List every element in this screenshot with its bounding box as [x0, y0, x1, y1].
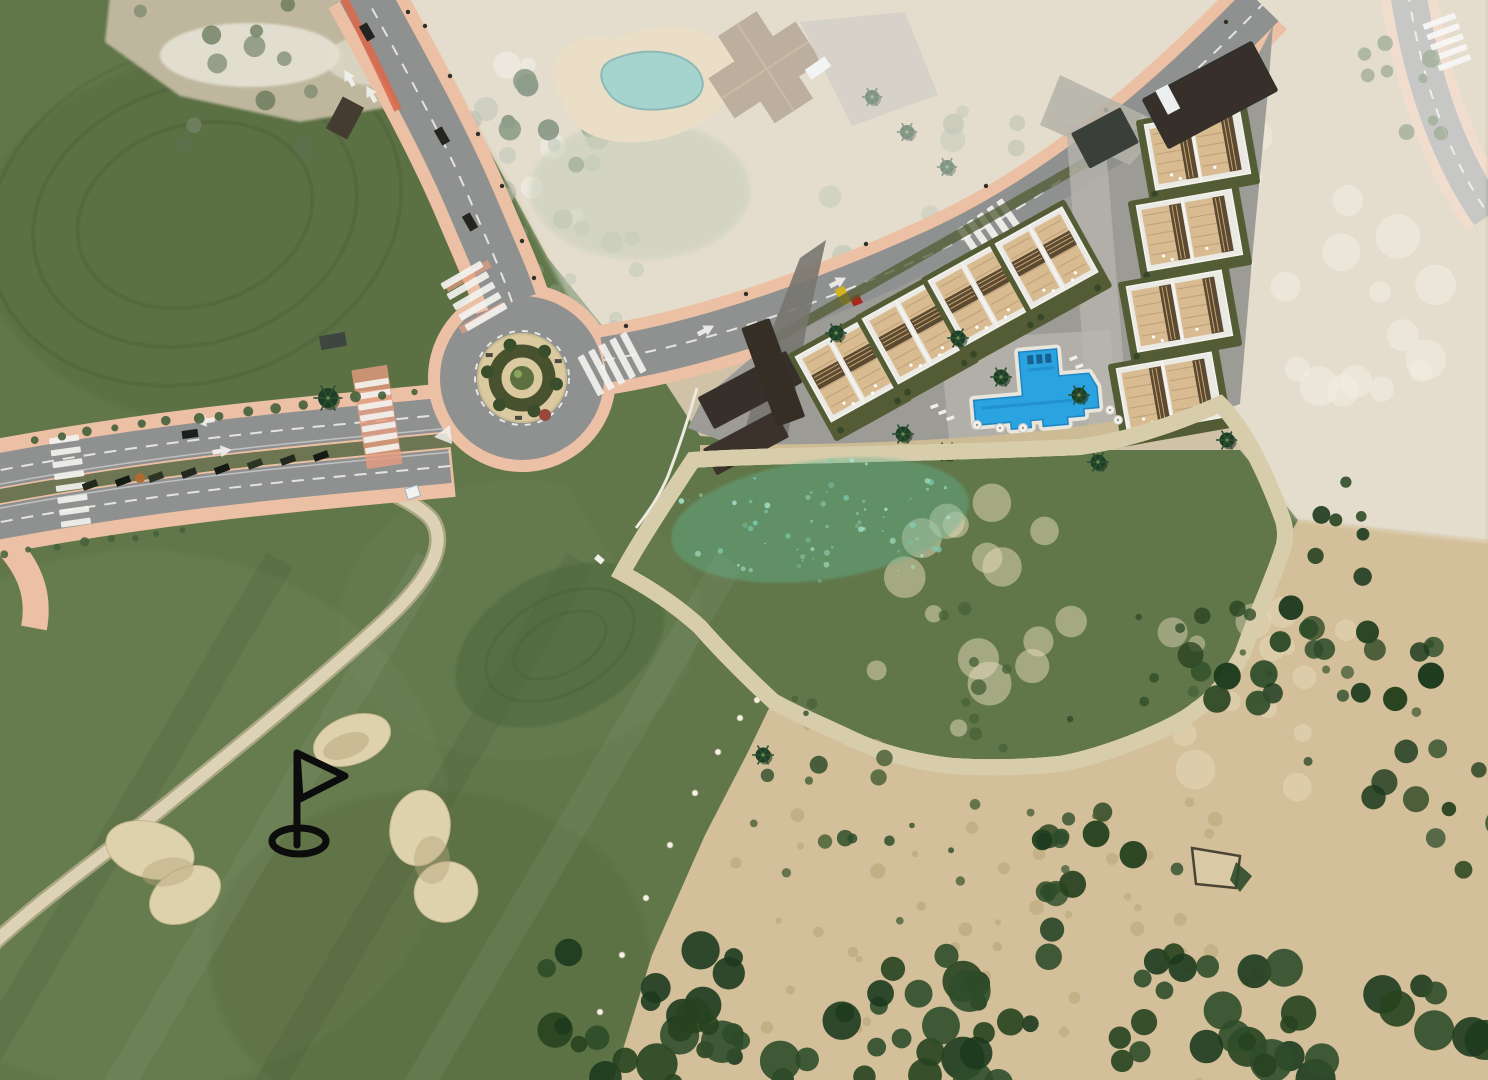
algae-speckle [897, 550, 900, 553]
tree [1204, 829, 1214, 839]
palm-crown [999, 375, 1002, 378]
street-light [532, 276, 536, 280]
shrub [138, 420, 146, 428]
tree [884, 835, 895, 846]
tree [174, 136, 191, 153]
tree [1356, 621, 1379, 644]
tree [1120, 841, 1147, 868]
tree [1051, 830, 1069, 848]
algae-speckle [856, 512, 860, 516]
tree [876, 750, 892, 766]
street-light [1224, 20, 1228, 24]
algae-speckle [855, 524, 859, 528]
algae-speckle [831, 546, 834, 549]
algae-speckle [810, 491, 813, 494]
tree [1129, 1041, 1150, 1062]
palm-crown [956, 336, 959, 339]
tree [847, 833, 857, 843]
tree [1130, 922, 1144, 936]
tree [134, 5, 147, 18]
tree [1185, 797, 1195, 807]
algae-speckle [916, 537, 919, 540]
shrub [270, 403, 281, 414]
street-light [476, 132, 480, 136]
tree [1229, 601, 1245, 617]
algae-speckle [884, 508, 887, 511]
palm-crown [326, 396, 329, 399]
shrub [782, 868, 791, 877]
tree [995, 919, 1001, 925]
shrub [0, 550, 8, 558]
tree [867, 1038, 886, 1057]
tree [958, 638, 999, 679]
shrub [1171, 863, 1184, 876]
shrub [54, 544, 61, 551]
tree [613, 1048, 638, 1073]
tree [870, 769, 886, 785]
street-light [984, 184, 988, 188]
tree [1379, 991, 1415, 1027]
tree [1471, 762, 1486, 777]
site-plan-canvas [0, 0, 1488, 1080]
tree [1059, 1027, 1069, 1037]
umbrella-pole [1109, 409, 1111, 411]
algae-speckle [911, 565, 915, 569]
boundary-stone [667, 842, 673, 848]
algae-speckle [800, 554, 805, 559]
red-shrub [539, 409, 551, 421]
tree [1253, 1054, 1277, 1078]
tree [1059, 871, 1086, 898]
tree [950, 719, 967, 736]
shrub [378, 391, 386, 399]
tree [862, 1017, 871, 1026]
algae-speckle [695, 551, 701, 557]
tree [1361, 785, 1385, 809]
shrub [1244, 608, 1256, 620]
algae-speckle [805, 537, 811, 543]
algae-speckle [850, 458, 855, 463]
tree [699, 1015, 719, 1035]
algae-speckle [742, 523, 747, 528]
tree [934, 944, 958, 968]
shrub [80, 537, 89, 546]
shrub [1135, 614, 1141, 620]
tree [1418, 663, 1444, 689]
shrub [807, 698, 818, 709]
palm-crown [1077, 393, 1080, 396]
shrub [1412, 707, 1422, 717]
algae-speckle [797, 564, 801, 568]
tree [1265, 949, 1303, 987]
tree [244, 35, 266, 57]
tree [1191, 661, 1211, 681]
shrub [243, 406, 253, 416]
shrub [970, 799, 981, 810]
tree [1294, 724, 1312, 742]
tree [856, 956, 863, 963]
algae-speckle [824, 562, 830, 568]
tree [1194, 608, 1211, 625]
tree [555, 939, 583, 967]
algae-speckle [948, 507, 950, 509]
tree [881, 957, 905, 981]
shrub [1337, 690, 1349, 702]
tree [256, 91, 276, 111]
tree [1414, 1010, 1454, 1050]
algae-speckle [897, 570, 899, 572]
shrub [161, 416, 171, 426]
tree [1383, 687, 1407, 711]
algae-speckle [812, 558, 814, 560]
shrub [750, 820, 758, 828]
boundary-stone [692, 790, 698, 796]
shrub [179, 527, 185, 533]
boundary-stone [597, 1009, 603, 1015]
shrub [132, 535, 138, 541]
shrub [31, 436, 39, 444]
tree [537, 959, 556, 978]
tree [1176, 750, 1216, 790]
algae-speckle [753, 521, 758, 526]
tree [1040, 917, 1064, 941]
tree [867, 660, 887, 680]
tree [1168, 954, 1196, 982]
tree [867, 980, 894, 1007]
algae-speckle [732, 501, 737, 506]
algae-speckle [764, 543, 766, 545]
shrub [298, 400, 307, 409]
shrub [1092, 813, 1099, 820]
algae-speckle [864, 508, 867, 511]
algae-speckle [858, 520, 862, 524]
tree [1335, 619, 1357, 641]
palm-crown [901, 432, 904, 435]
tree [1124, 893, 1132, 901]
shrub [108, 535, 115, 542]
shrub [1341, 666, 1354, 679]
algae-speckle [828, 482, 834, 488]
tree [1208, 812, 1223, 827]
tree [1353, 567, 1371, 585]
shrub [1188, 686, 1199, 697]
tree [997, 1008, 1024, 1035]
algae-speckle [805, 495, 810, 500]
algae-speckle [753, 477, 756, 480]
algae-speckle [749, 500, 753, 504]
tree [971, 679, 987, 695]
island-shrub [538, 345, 551, 358]
algae-speckle [802, 560, 804, 562]
tree [892, 1029, 912, 1049]
algae-speckle [882, 516, 884, 518]
tree [786, 985, 795, 994]
tree [922, 1007, 960, 1045]
algae-speckle [862, 500, 865, 503]
island-shrub [527, 404, 540, 417]
island-center-planting [510, 366, 534, 390]
algae-speckle [764, 510, 768, 514]
tree [813, 927, 824, 938]
algae-speckle [944, 486, 947, 489]
shrub [909, 823, 915, 829]
tree [1190, 1030, 1224, 1064]
algae-speckle [687, 499, 689, 501]
street-light [448, 74, 452, 78]
umbrella-pole [1117, 419, 1119, 421]
tree [959, 922, 973, 936]
shrub [1175, 623, 1185, 633]
tree [1424, 981, 1447, 1004]
tree [870, 863, 885, 878]
tree [905, 980, 933, 1008]
umbrella-pole [976, 424, 978, 426]
boundary-stone [737, 715, 743, 721]
shrub [1139, 697, 1149, 707]
shrub [958, 602, 971, 615]
tree [1329, 513, 1342, 526]
street-light [864, 242, 868, 246]
tree [1455, 861, 1473, 879]
shrub [25, 546, 31, 552]
tree [1158, 617, 1188, 647]
algae-speckle [931, 546, 937, 552]
shrub [948, 847, 954, 853]
tree [1426, 828, 1446, 848]
shrub [1266, 670, 1272, 676]
tree [554, 1018, 571, 1035]
street-light [500, 184, 504, 188]
algae-speckle [890, 538, 896, 544]
tree [1403, 786, 1429, 812]
bench [555, 359, 562, 363]
pool-steps [1045, 353, 1052, 362]
shrub [1067, 716, 1074, 723]
tree [1246, 691, 1271, 716]
tree [1442, 802, 1456, 816]
tree [1292, 665, 1316, 689]
island-shrub [481, 365, 494, 378]
tree [960, 1037, 993, 1070]
tree [999, 744, 1008, 753]
algae-speckle [699, 493, 703, 497]
tree [791, 808, 805, 822]
tree [1428, 739, 1447, 758]
algae-speckle [810, 547, 814, 551]
tree [969, 657, 979, 667]
tree [186, 118, 201, 133]
shrub [803, 710, 809, 716]
island-shrub [493, 398, 506, 411]
tree [1196, 955, 1219, 978]
tree [571, 1036, 587, 1052]
tree [1109, 1027, 1131, 1049]
tree [1280, 1015, 1298, 1033]
algae-speckle [810, 520, 813, 523]
tree [1106, 853, 1118, 865]
tree [761, 1021, 773, 1033]
bench [486, 353, 493, 357]
tree [760, 1041, 801, 1080]
tree [948, 970, 990, 1012]
algae-speckle [749, 568, 753, 572]
tree [969, 727, 982, 740]
algae-speckle [858, 526, 864, 532]
tree [730, 857, 741, 868]
tree [1305, 1043, 1339, 1077]
algae-speckle [737, 564, 740, 567]
tree [1270, 631, 1291, 652]
palm-crown [834, 331, 837, 334]
bench [515, 416, 522, 420]
algae-speckle [824, 550, 830, 556]
algae-speckle [748, 526, 754, 532]
palm-crown [1225, 438, 1228, 441]
street-light [423, 24, 427, 28]
pool-steps [1027, 355, 1034, 364]
tree [1299, 619, 1318, 638]
shrub [411, 389, 417, 395]
tree [1351, 683, 1371, 703]
palm-crown [1096, 460, 1099, 463]
tree [250, 24, 263, 37]
tree [304, 85, 318, 99]
algae-speckle [796, 548, 799, 551]
tree [1023, 626, 1053, 656]
tree [961, 698, 970, 707]
tree [1204, 991, 1242, 1029]
tree [969, 713, 979, 723]
island-center-highlight [514, 370, 522, 378]
tree [823, 1001, 862, 1040]
tree [294, 137, 314, 157]
algae-speckle [908, 499, 910, 501]
tree [982, 547, 1021, 586]
algae-speckle [741, 566, 746, 571]
tree [810, 756, 828, 774]
tree [1307, 548, 1323, 564]
tree [1134, 904, 1142, 912]
algae-speckle [926, 488, 929, 491]
tree [1238, 1033, 1256, 1051]
tree [1036, 833, 1052, 849]
tree [1035, 943, 1062, 970]
tree [277, 51, 292, 66]
tree [202, 25, 221, 44]
boundary-stone [643, 895, 649, 901]
algae-speckle [865, 462, 868, 465]
shrub [1149, 673, 1159, 683]
island-shrub [550, 378, 563, 391]
shrub [1304, 757, 1313, 766]
algae-speckle [925, 478, 930, 483]
tree [641, 991, 661, 1011]
shrub [939, 610, 949, 620]
tree [1083, 821, 1110, 848]
tree [848, 947, 859, 958]
tree [1134, 970, 1152, 988]
algae-speckle [946, 516, 950, 520]
tree [1002, 664, 1012, 674]
algae-speckle [820, 501, 825, 506]
tree [1357, 528, 1370, 541]
tree [585, 1025, 610, 1050]
shrub [58, 432, 66, 440]
shrub [1240, 649, 1246, 655]
shrub [896, 917, 904, 925]
algae-speckle [718, 548, 724, 554]
island-shrub [504, 339, 517, 352]
tree [917, 902, 926, 911]
shrub [1062, 812, 1075, 825]
tree [1356, 511, 1367, 522]
shrub [956, 876, 965, 885]
tree [966, 822, 978, 834]
boundary-stone [715, 749, 721, 755]
tree [912, 851, 918, 857]
tree [1174, 913, 1187, 926]
tree [1030, 517, 1059, 546]
tree [1203, 685, 1231, 713]
street-light [520, 239, 524, 243]
tree [1022, 1015, 1039, 1032]
tree [797, 843, 804, 850]
tree [1068, 992, 1080, 1004]
shrub [1322, 666, 1330, 674]
algae-speckle [911, 498, 913, 500]
shrub [350, 391, 361, 402]
tree [1283, 773, 1312, 802]
shrub [1061, 865, 1070, 874]
umbrella-pole [999, 427, 1001, 429]
shrub [215, 412, 224, 421]
algae-speckle [679, 498, 685, 504]
algae-speckle [920, 554, 923, 557]
algae-speckle [764, 502, 770, 508]
shrub [761, 769, 774, 782]
tree [207, 54, 227, 74]
shrub [1050, 883, 1061, 894]
tree [818, 834, 832, 848]
algae-speckle [908, 539, 914, 545]
algae-speckle [825, 525, 829, 529]
algae-speckle [910, 522, 916, 528]
tree [1131, 1009, 1157, 1035]
tree [1029, 900, 1044, 915]
algae-speckle [785, 533, 790, 538]
shrub [1027, 809, 1035, 817]
street-light [744, 292, 748, 296]
tree [1156, 982, 1174, 1000]
algae-speckle [818, 579, 822, 583]
tree [1312, 506, 1330, 524]
tree [681, 931, 719, 969]
tree [973, 484, 1012, 523]
bunker-shade [414, 836, 450, 884]
palm-crown [761, 753, 764, 756]
tree [805, 777, 813, 785]
tree [1340, 476, 1351, 487]
street-light [406, 10, 410, 14]
shrub [153, 531, 159, 537]
orange-tree [135, 473, 145, 483]
tree [1394, 740, 1418, 764]
tree [1065, 911, 1073, 919]
algae-speckle [826, 491, 828, 493]
tree [1305, 640, 1324, 659]
shrub [1426, 640, 1434, 648]
umbrella-pole [1022, 427, 1024, 429]
